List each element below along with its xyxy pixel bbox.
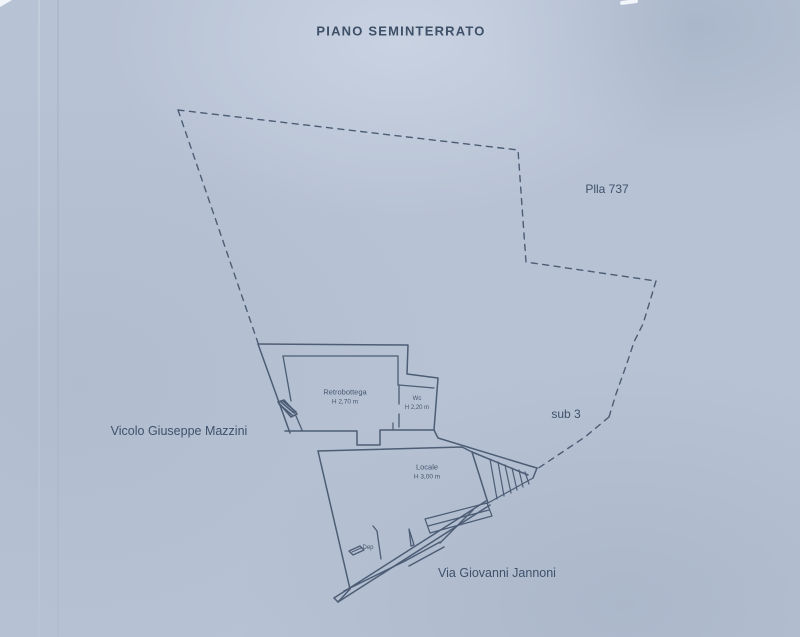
interior-stair-rectangle — [425, 503, 492, 533]
site-boundary-dashed — [178, 110, 656, 469]
street-label-left: Vicolo Giuseppe Mazzini — [111, 424, 248, 438]
room-height-retrobottega: H 2,70 m — [332, 399, 358, 406]
room-label-locale: Locale — [416, 463, 438, 472]
dividing-wall-notch — [285, 423, 434, 445]
floor-plan-drawing — [0, 0, 800, 637]
scanned-floor-plan-page: PIANO SEMINTERRATO Plla 737 sub 3 Vicolo… — [0, 0, 800, 637]
room-label-retrobottega: Retrobottega — [323, 388, 366, 397]
room-label-wc: Wc — [413, 396, 422, 402]
room-label-dep: Dep — [362, 545, 373, 551]
sub-label: sub 3 — [551, 407, 580, 421]
room-height-locale: H 3,00 m — [414, 474, 440, 481]
plan-title: PIANO SEMINTERRATO — [316, 24, 485, 39]
corridor-band-walls — [434, 430, 537, 478]
parcel-label: Plla 737 — [585, 182, 628, 196]
room-height-wc: H 2,20 m — [405, 405, 429, 411]
street-label-bottom: Via Giovanni Jannoni — [438, 566, 556, 580]
